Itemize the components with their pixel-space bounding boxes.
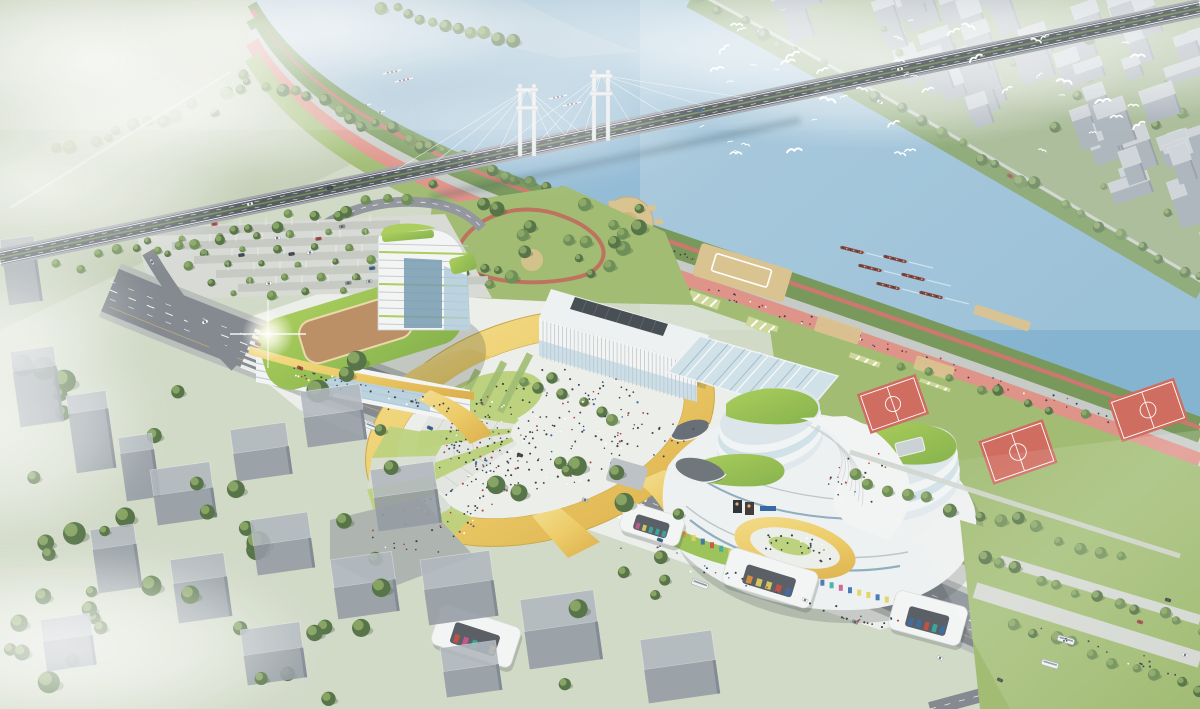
fog [0, 0, 1200, 709]
aerial-rendering: Aerial architectural rendering of a rive… [0, 0, 1200, 709]
rendering-canvas [0, 0, 1200, 709]
